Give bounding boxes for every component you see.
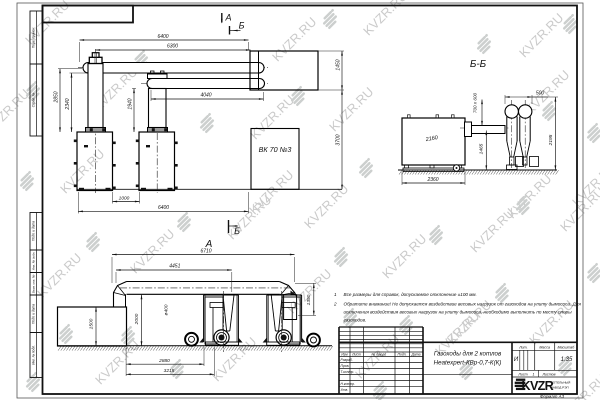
svg-text:700 х 600: 700 х 600: [473, 92, 478, 113]
svg-text:Б: Б: [239, 21, 245, 31]
svg-text:4040: 4040: [200, 93, 211, 99]
svg-text:1: 1: [334, 292, 337, 297]
svg-text:2360: 2360: [426, 177, 438, 183]
svg-text:2: 2: [333, 302, 337, 307]
svg-text:3215: 3215: [164, 368, 175, 374]
svg-text:1940: 1940: [127, 98, 133, 109]
svg-text:6710: 6710: [200, 248, 211, 254]
svg-text:Т.контр.: Т.контр.: [341, 370, 355, 374]
svg-text:Инв. № дубл.: Инв. № дубл.: [32, 252, 36, 271]
svg-text:3700: 3700: [335, 134, 341, 145]
svg-text:2195: 2195: [548, 134, 554, 146]
svg-text:1500: 1500: [88, 318, 94, 329]
svg-text:Н.контр.: Н.контр.: [341, 382, 355, 386]
svg-text:6400: 6400: [157, 34, 168, 40]
svg-text:1: 1: [533, 373, 535, 377]
svg-text:Подп. и дата: Подп. и дата: [32, 221, 36, 241]
svg-text:Heatexpert-КВр-0,7-К(К): Heatexpert-КВр-0,7-К(К): [434, 360, 502, 367]
svg-text:ЗАВОД РЭП: ЗАВОД РЭП: [551, 386, 569, 390]
svg-text:КОТЕЛЬНЫЙ: КОТЕЛЬНЫЙ: [551, 381, 570, 385]
svg-text:1000: 1000: [119, 195, 130, 201]
svg-text:Лист: Лист: [517, 373, 527, 377]
svg-text:Изм: Изм: [341, 352, 348, 356]
svg-text:Подп. и дата: Подп. и дата: [32, 304, 36, 324]
svg-text:Обратите внимание! Не допускае: Обратите внимание! Не допускается воздей…: [344, 301, 582, 307]
svg-text:4451: 4451: [169, 264, 180, 270]
svg-text:1:35: 1:35: [561, 357, 573, 363]
svg-text:Взам. инв. №: Взам. инв. №: [32, 274, 36, 293]
svg-text:Б: Б: [234, 226, 240, 236]
svg-text:Утв.: Утв.: [341, 388, 349, 392]
svg-text:№ докум.: № докум.: [372, 352, 387, 356]
svg-text:6400: 6400: [158, 205, 169, 211]
svg-text:Лит.: Лит.: [518, 345, 527, 349]
svg-text:Все размеры для справок, допус: Все размеры для справок, допускаемое отк…: [344, 292, 477, 297]
svg-text:ВК 70 №3: ВК 70 №3: [259, 145, 292, 154]
svg-text:Разраб.: Разраб.: [341, 358, 353, 362]
svg-text:Дата: Дата: [411, 352, 421, 356]
svg-text:ø400: ø400: [164, 304, 170, 315]
svg-text:Масштаб: Масштаб: [558, 345, 576, 349]
svg-text:2340: 2340: [65, 98, 71, 110]
svg-text:Лист: Лист: [351, 352, 361, 356]
svg-text:Инв. № подл.: Инв. № подл.: [32, 345, 36, 365]
svg-text:2880: 2880: [158, 358, 170, 364]
svg-text:1450: 1450: [335, 59, 341, 70]
svg-text:Газоходы для 2 котлов: Газоходы для 2 котлов: [434, 351, 502, 358]
svg-text:Перв. примен.: Перв. примен.: [32, 27, 36, 48]
svg-text:2850: 2850: [53, 91, 59, 103]
svg-text:Подп.: Подп.: [397, 352, 406, 356]
svg-text:500: 500: [536, 91, 545, 97]
svg-text:2000: 2000: [134, 313, 140, 325]
svg-text:А: А: [224, 13, 231, 23]
svg-text:Пров.: Пров.: [341, 364, 350, 368]
svg-text:исключения воздействия весовых: исключения воздействия весовых нагрузок …: [344, 309, 573, 315]
svg-text:газоходов.: газоходов.: [344, 318, 367, 323]
svg-text:Масса: Масса: [539, 345, 550, 349]
svg-text:KVZR: KVZR: [522, 379, 554, 393]
svg-text:6300: 6300: [167, 44, 178, 50]
svg-text:Справ. №: Справ. №: [32, 92, 36, 107]
svg-text:Листов: Листов: [541, 373, 555, 377]
svg-text:Формат А3: Формат А3: [540, 394, 565, 399]
svg-text:1350: 1350: [306, 294, 312, 305]
svg-text:И: И: [514, 357, 519, 363]
svg-text:Б-Б: Б-Б: [470, 59, 487, 70]
svg-text:1465: 1465: [479, 143, 485, 154]
